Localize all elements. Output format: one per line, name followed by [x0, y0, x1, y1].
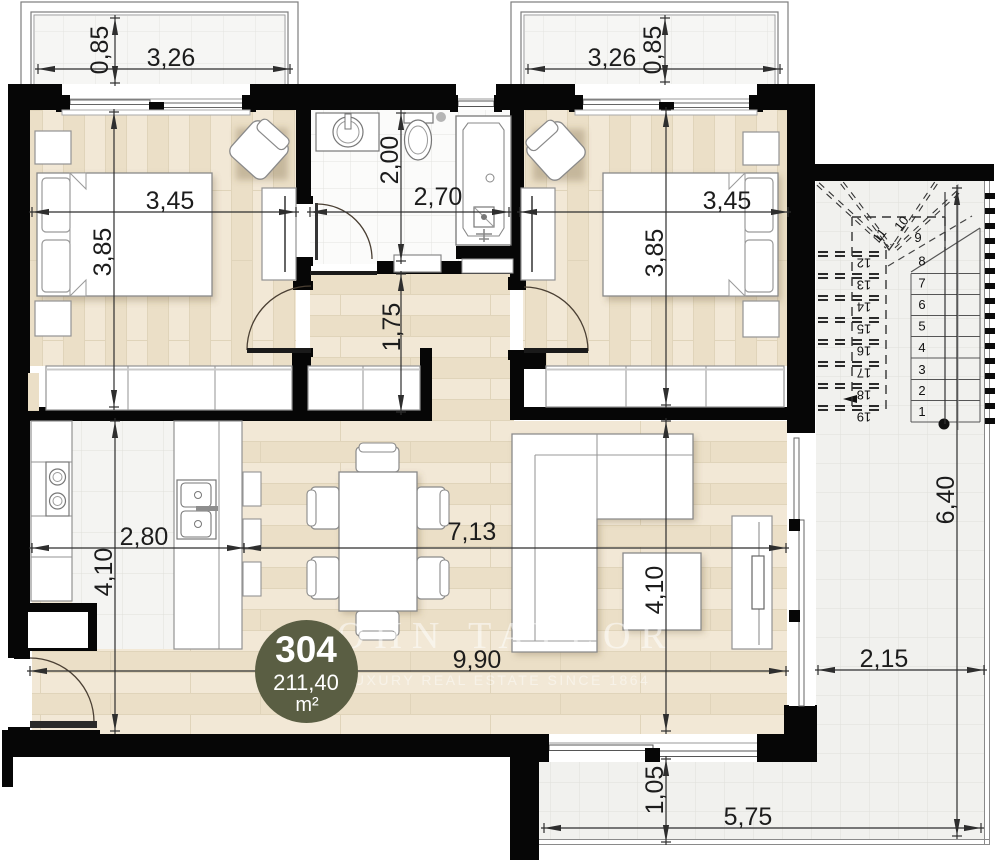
svg-text:6,40: 6,40 [932, 476, 960, 525]
svg-text:3,26: 3,26 [147, 44, 196, 72]
svg-text:3,85: 3,85 [641, 229, 669, 278]
svg-text:12: 12 [857, 256, 871, 271]
svg-text:2,80: 2,80 [120, 523, 169, 551]
svg-text:1,75: 1,75 [378, 303, 406, 352]
svg-text:4: 4 [918, 340, 925, 355]
svg-text:18: 18 [857, 388, 871, 403]
svg-text:15: 15 [857, 322, 871, 337]
svg-text:2,70: 2,70 [414, 183, 463, 211]
svg-text:304: 304 [275, 629, 337, 670]
svg-text:3,26: 3,26 [588, 44, 637, 72]
svg-text:9: 9 [914, 230, 921, 245]
svg-text:0,85: 0,85 [639, 26, 667, 75]
svg-text:4,10: 4,10 [90, 548, 118, 597]
svg-text:LUXURY REAL ESTATE SINCE 1864: LUXURY REAL ESTATE SINCE 1864 [344, 672, 651, 688]
svg-text:1: 1 [918, 404, 925, 419]
svg-text:7: 7 [918, 276, 925, 291]
svg-text:13: 13 [857, 278, 871, 293]
svg-text:7,13: 7,13 [448, 518, 497, 546]
svg-text:2: 2 [918, 383, 925, 398]
svg-text:211,40: 211,40 [273, 670, 339, 695]
svg-text:19: 19 [857, 410, 871, 425]
svg-text:0,85: 0,85 [86, 26, 114, 75]
svg-text:16: 16 [857, 344, 871, 359]
svg-text:1,05: 1,05 [641, 766, 669, 815]
svg-text:2,00: 2,00 [376, 136, 404, 185]
svg-text:2,15: 2,15 [860, 645, 909, 673]
svg-text:9,90: 9,90 [453, 646, 502, 674]
svg-text:6: 6 [918, 297, 925, 312]
svg-text:14: 14 [857, 300, 871, 315]
svg-text:5,75: 5,75 [724, 803, 773, 831]
svg-text:3,85: 3,85 [89, 228, 117, 277]
svg-text:3,45: 3,45 [703, 187, 752, 215]
svg-text:3,45: 3,45 [146, 187, 195, 215]
svg-text:5: 5 [918, 319, 925, 334]
svg-text:8: 8 [918, 254, 925, 269]
svg-text:4,10: 4,10 [641, 566, 669, 615]
svg-text:3: 3 [918, 362, 925, 377]
svg-text:17: 17 [857, 366, 871, 381]
svg-text:m²: m² [295, 694, 319, 716]
